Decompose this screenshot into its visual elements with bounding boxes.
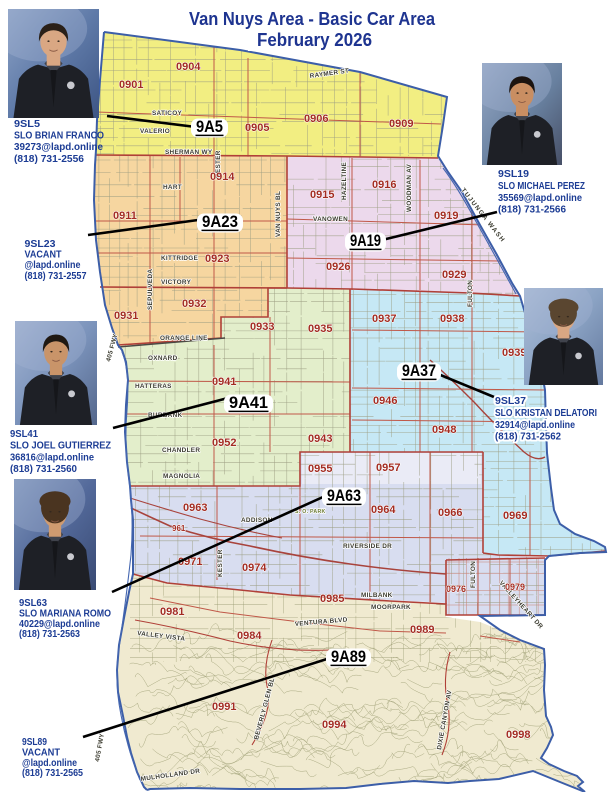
svg-text:9SL23: 9SL23	[25, 239, 56, 250]
svg-text:0911: 0911	[113, 210, 137, 222]
svg-text:WOODMAN AV: WOODMAN AV	[406, 163, 413, 212]
svg-text:SLO BRIAN FRANCO: SLO BRIAN FRANCO	[14, 131, 104, 142]
svg-text:0943: 0943	[308, 433, 332, 445]
svg-text:KESTER: KESTER	[217, 549, 224, 577]
svg-text:32914@lapd.online: 32914@lapd.online	[495, 420, 575, 431]
svg-text:SLO MICHAEL PEREZ: SLO MICHAEL PEREZ	[498, 181, 585, 192]
svg-text:36816@lapd.online: 36816@lapd.online	[10, 452, 94, 463]
svg-text:ORANGE LINE: ORANGE LINE	[160, 335, 208, 342]
svg-text:0932: 0932	[182, 298, 206, 310]
svg-text:KITTRIDGE: KITTRIDGE	[161, 255, 199, 262]
svg-text:961: 961	[172, 524, 186, 533]
svg-text:SATICOY: SATICOY	[152, 110, 182, 117]
svg-text:S. O. PARK: S. O. PARK	[295, 509, 326, 515]
svg-text:0933: 0933	[250, 321, 274, 333]
svg-text:40229@lapd.online: 40229@lapd.online	[19, 619, 100, 630]
svg-text:FULTON: FULTON	[467, 280, 474, 307]
svg-text:0963: 0963	[183, 502, 207, 514]
svg-text:SLO KRISTAN DELATORI: SLO KRISTAN DELATORI	[495, 408, 597, 419]
svg-text:0985: 0985	[320, 593, 344, 605]
svg-text:(818) 731-2565: (818) 731-2565	[22, 768, 83, 779]
svg-text:OXNARD: OXNARD	[148, 355, 178, 362]
svg-text:(818) 731-2557: (818) 731-2557	[25, 271, 87, 282]
svg-text:9A89: 9A89	[331, 648, 366, 666]
svg-text:0906: 0906	[304, 113, 328, 125]
svg-text:0984: 0984	[237, 630, 262, 642]
svg-text:0926: 0926	[326, 261, 350, 273]
svg-text:VACANT: VACANT	[22, 747, 61, 758]
svg-text:0909: 0909	[389, 118, 413, 130]
svg-text:CHANDLER: CHANDLER	[162, 447, 200, 454]
svg-text:SLO JOEL GUTIERREZ: SLO JOEL GUTIERREZ	[10, 441, 111, 452]
svg-text:0952: 0952	[212, 437, 236, 449]
svg-text:0994: 0994	[322, 719, 347, 731]
svg-text:(818) 731-2560: (818) 731-2560	[10, 464, 77, 475]
svg-text:0946: 0946	[373, 395, 397, 407]
svg-text:HART: HART	[163, 184, 182, 191]
svg-text:FULTON: FULTON	[470, 561, 477, 588]
svg-text:0989: 0989	[410, 624, 434, 636]
svg-text:0981: 0981	[160, 606, 184, 618]
svg-text:VALERIO: VALERIO	[140, 128, 170, 135]
svg-text:0905: 0905	[245, 122, 269, 134]
svg-text:9A63: 9A63	[327, 487, 361, 505]
svg-text:(818) 731-2556: (818) 731-2556	[14, 154, 84, 165]
svg-text:(818) 731-2566: (818) 731-2566	[498, 205, 566, 216]
svg-text:0998: 0998	[506, 729, 530, 741]
svg-text:0991: 0991	[212, 701, 236, 713]
svg-text:0957: 0957	[376, 462, 400, 474]
svg-text:0904: 0904	[176, 61, 201, 73]
svg-text:MAGNOLIA: MAGNOLIA	[163, 473, 200, 480]
svg-text:VAN NUYS BL: VAN NUYS BL	[275, 191, 282, 237]
svg-text:0969: 0969	[503, 510, 527, 522]
svg-text:SHERMAN WY: SHERMAN WY	[165, 149, 213, 156]
svg-text:9SL89: 9SL89	[22, 737, 47, 748]
svg-text:0948: 0948	[432, 424, 456, 436]
svg-text:RIVERSIDE DR: RIVERSIDE DR	[343, 543, 392, 550]
svg-text:39273@lapd.online: 39273@lapd.online	[14, 142, 103, 153]
svg-text:0914: 0914	[210, 171, 235, 183]
svg-text:VACANT: VACANT	[25, 250, 63, 261]
svg-text:0938: 0938	[440, 313, 464, 325]
svg-text:SLO MARIANA ROMO: SLO MARIANA ROMO	[19, 608, 111, 619]
svg-text:0931: 0931	[114, 310, 138, 322]
svg-text:0941: 0941	[212, 376, 236, 388]
svg-text:MOORPARK: MOORPARK	[371, 604, 411, 611]
svg-text:0964: 0964	[371, 504, 396, 516]
svg-text:0974: 0974	[242, 562, 267, 574]
svg-text:0901: 0901	[119, 79, 143, 91]
svg-text:0916: 0916	[372, 179, 396, 191]
svg-text:9SL63: 9SL63	[19, 598, 47, 609]
svg-text:(818) 731-2563: (818) 731-2563	[19, 629, 80, 640]
svg-text:@lapd.online: @lapd.online	[22, 758, 77, 769]
svg-text:9SL5: 9SL5	[14, 119, 40, 130]
svg-text:HAZELTINE: HAZELTINE	[341, 161, 348, 200]
svg-text:9SL19: 9SL19	[498, 169, 529, 180]
svg-text:0955: 0955	[308, 463, 332, 475]
svg-text:9SL37: 9SL37	[495, 396, 526, 407]
svg-text:0976: 0976	[446, 584, 466, 594]
svg-text:0939: 0939	[502, 347, 526, 359]
svg-text:HATTERAS: HATTERAS	[135, 383, 172, 390]
svg-text:35569@lapd.online: 35569@lapd.online	[498, 193, 582, 204]
svg-text:0979: 0979	[505, 582, 525, 592]
svg-text:9SL41: 9SL41	[10, 429, 38, 440]
svg-text:0929: 0929	[442, 269, 466, 281]
svg-text:9A37: 9A37	[402, 362, 436, 380]
svg-text:0915: 0915	[310, 189, 334, 201]
svg-text:0919: 0919	[434, 210, 458, 222]
svg-text:0935: 0935	[308, 323, 332, 335]
svg-text:MILBANK: MILBANK	[361, 592, 393, 599]
svg-text:VICTORY: VICTORY	[161, 279, 192, 286]
svg-text:(818) 731-2562: (818) 731-2562	[495, 432, 561, 443]
svg-text:SEPULVEDA: SEPULVEDA	[147, 269, 154, 310]
svg-text:9A19: 9A19	[350, 232, 381, 250]
svg-text:VANOWEN: VANOWEN	[313, 216, 348, 223]
svg-text:9A23: 9A23	[202, 213, 238, 231]
svg-text:Van Nuys Area - Basic Car Area: Van Nuys Area - Basic Car Area	[189, 8, 436, 29]
svg-text:@lapd.online: @lapd.online	[25, 260, 81, 271]
svg-text:February 2026: February 2026	[257, 29, 372, 50]
svg-text:0923: 0923	[205, 253, 229, 265]
svg-text:0937: 0937	[372, 313, 396, 325]
svg-text:0966: 0966	[438, 507, 462, 519]
svg-text:9A5: 9A5	[196, 118, 223, 136]
svg-text:9A41: 9A41	[229, 394, 268, 412]
